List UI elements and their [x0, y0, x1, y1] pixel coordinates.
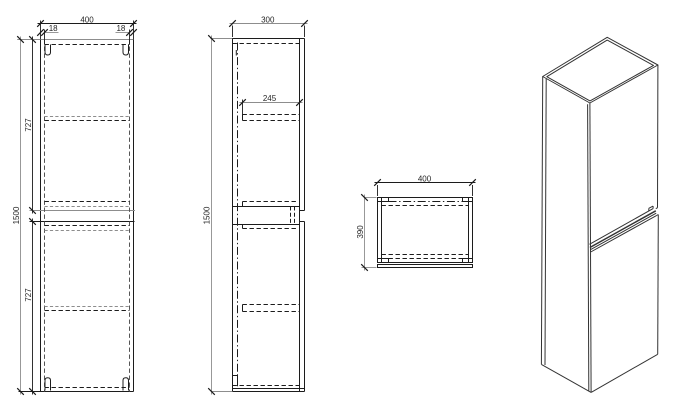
svg-text:727: 727: [24, 118, 33, 132]
svg-text:245: 245: [263, 94, 277, 103]
svg-text:400: 400: [418, 174, 432, 183]
svg-text:1500: 1500: [12, 206, 21, 224]
svg-text:400: 400: [80, 15, 94, 24]
svg-text:300: 300: [261, 15, 275, 24]
svg-text:727: 727: [24, 288, 33, 302]
svg-text:18: 18: [116, 24, 125, 33]
svg-text:1500: 1500: [202, 206, 211, 224]
svg-text:390: 390: [356, 225, 365, 239]
svg-text:18: 18: [49, 24, 58, 33]
